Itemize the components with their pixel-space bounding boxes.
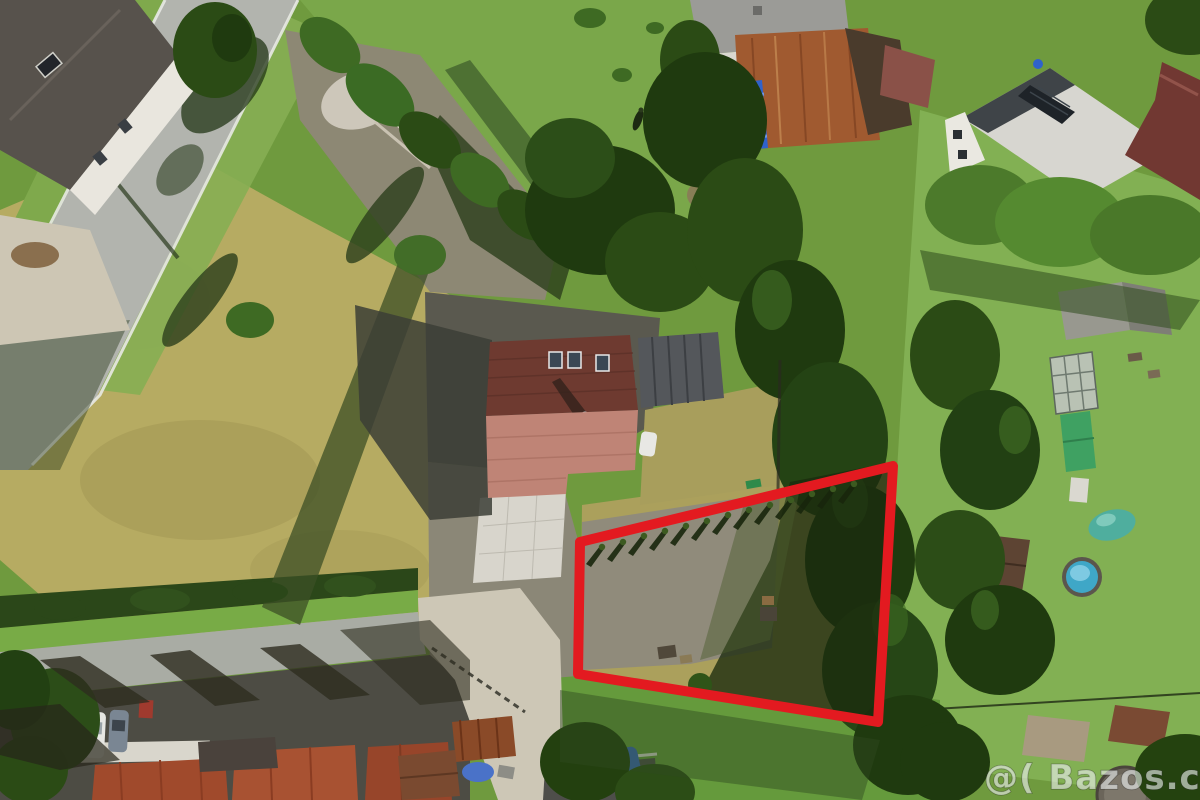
blue-tarp-pile	[462, 762, 494, 782]
aerial-photo: @( Bazos.cz	[0, 0, 1200, 800]
roof-window	[568, 352, 581, 368]
fence-line	[778, 360, 780, 490]
main-roof-upper	[486, 335, 638, 416]
plot-object	[657, 645, 676, 659]
white-car	[638, 431, 657, 457]
blue-barrel	[1033, 59, 1043, 69]
person	[639, 108, 644, 113]
plot-object	[762, 596, 774, 605]
sand-pile	[11, 242, 59, 268]
greenhouse	[1050, 352, 1098, 414]
roof-window	[596, 355, 609, 371]
se-shed-roof2	[1022, 715, 1090, 762]
bazos-watermark: @( Bazos.cz	[984, 758, 1200, 798]
aerial-photo-canvas: @( Bazos.cz	[0, 0, 1200, 800]
dark-roof-section	[198, 737, 278, 772]
roof-window	[549, 352, 562, 368]
plot-object	[760, 607, 777, 621]
white-cabinet	[1069, 477, 1089, 502]
metal-annex-roof	[638, 332, 724, 408]
